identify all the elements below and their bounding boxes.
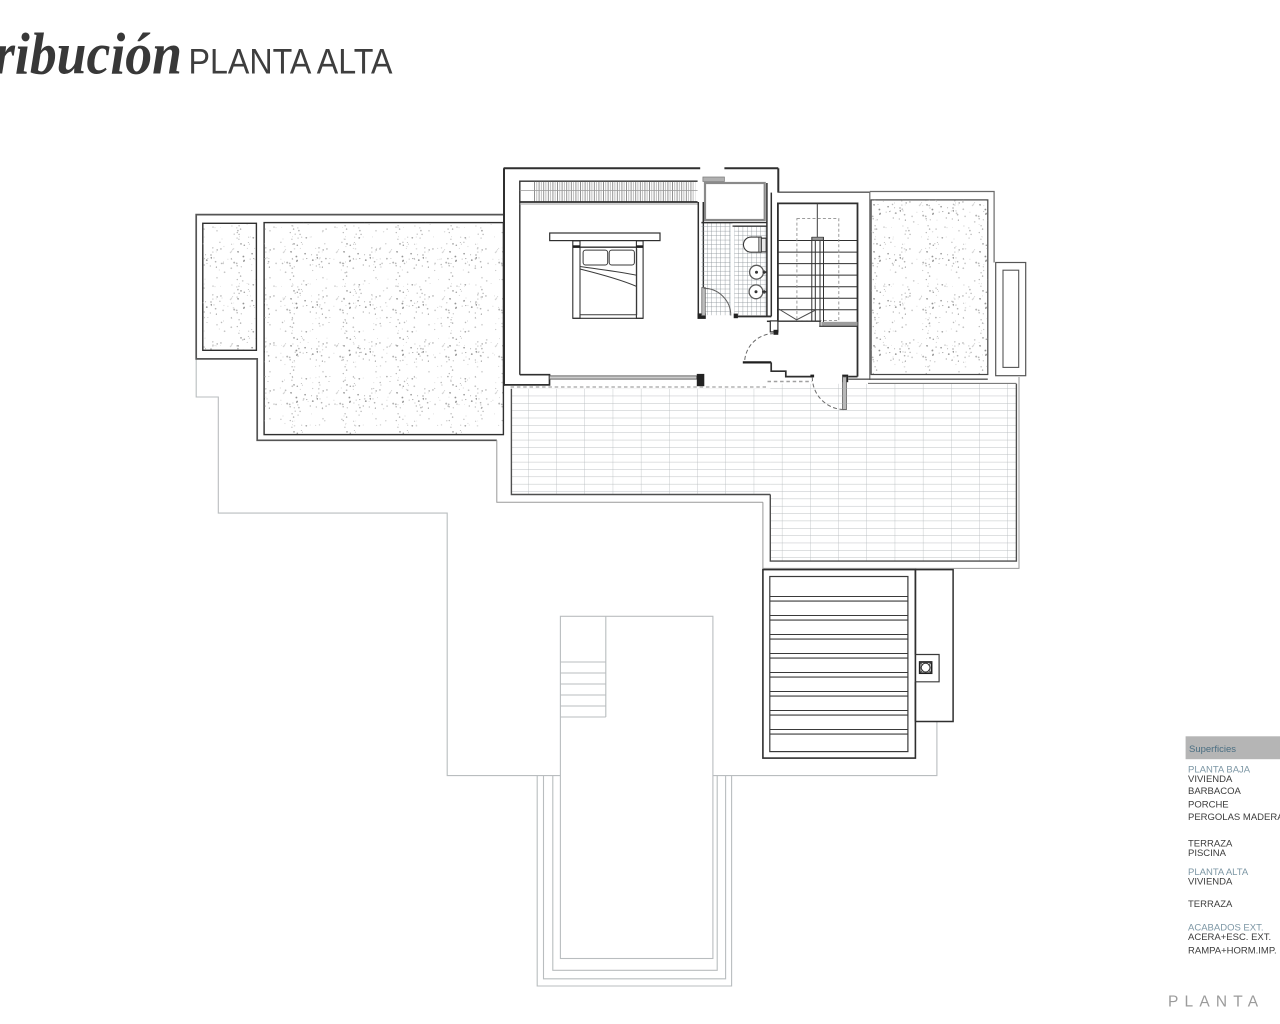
svg-text:RAMPA+HORM.IMP.: RAMPA+HORM.IMP.: [1188, 946, 1277, 957]
svg-text:PORCHE: PORCHE: [1188, 800, 1229, 811]
svg-text:VIVIENDA: VIVIENDA: [1188, 877, 1233, 888]
svg-text:BARBACOA: BARBACOA: [1188, 786, 1241, 797]
svg-text:PLANTA: PLANTA: [1168, 994, 1264, 1011]
svg-text:Superficies: Superficies: [1189, 744, 1236, 755]
svg-text:ribución: ribución: [0, 21, 182, 87]
svg-text:TERRAZA: TERRAZA: [1188, 899, 1233, 910]
svg-text:PLANTA ALTA: PLANTA ALTA: [189, 43, 394, 82]
svg-text:VIVIENDA: VIVIENDA: [1188, 774, 1233, 785]
svg-text:ACERA+ESC. EXT.: ACERA+ESC. EXT.: [1188, 932, 1271, 943]
svg-text:PISCINA: PISCINA: [1188, 848, 1227, 859]
svg-text:PERGOLAS MADERA: PERGOLAS MADERA: [1188, 812, 1280, 823]
